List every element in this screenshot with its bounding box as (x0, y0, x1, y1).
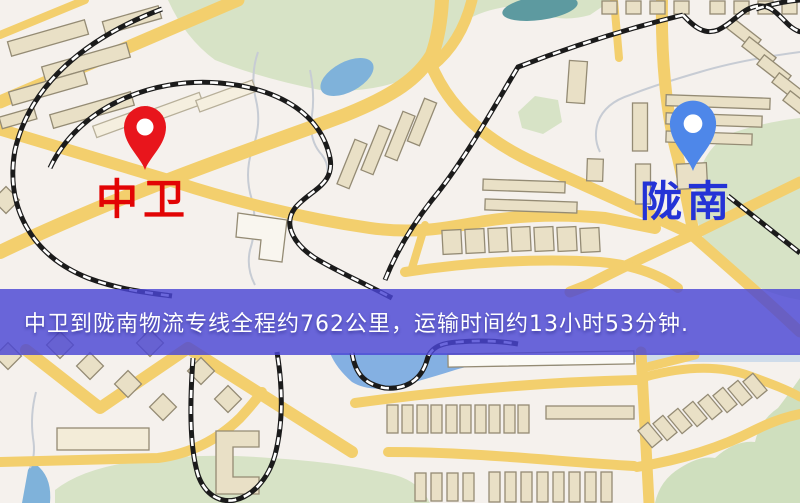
map-pin-icon (670, 101, 716, 171)
origin-city-label: 中卫 (96, 179, 190, 221)
map-pin-icon (124, 106, 166, 170)
destination-pin[interactable] (667, 96, 719, 172)
map-view: 中卫 陇南 中卫到陇南物流专线全程约762公里，运输时间约13小时53分钟. (0, 0, 800, 503)
map-background (0, 0, 800, 503)
route-info-banner: 中卫到陇南物流专线全程约762公里，运输时间约13小时53分钟. (0, 289, 800, 355)
destination-city-label: 陇南 (640, 181, 734, 223)
route-info-text: 中卫到陇南物流专线全程约762公里，运输时间约13小时53分钟. (0, 306, 689, 338)
origin-pin[interactable] (121, 101, 169, 171)
